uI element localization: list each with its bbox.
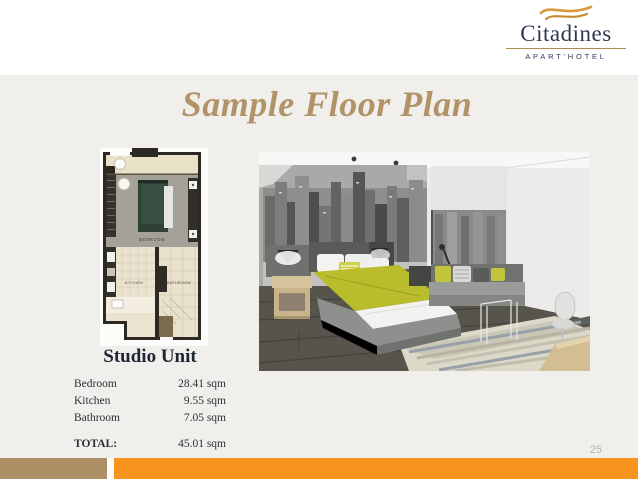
slide-title: Sample Floor Plan <box>0 83 638 125</box>
plan-rooms <box>106 155 198 340</box>
footer-orange-bar <box>114 458 638 479</box>
wave-icon <box>539 4 593 22</box>
kitchen-label: KITCHEN <box>125 281 144 285</box>
footer <box>0 458 638 479</box>
row-label: Kitchen <box>74 393 110 410</box>
bedroom-label: BEDROOM <box>139 237 165 242</box>
bedroom-photo <box>259 152 590 371</box>
row-label: Bathroom <box>74 410 120 427</box>
row-value: 7.05 sqm <box>184 410 226 427</box>
table-row: Kitchen 9.55 sqm <box>74 393 226 410</box>
citadines-logo: Citadines APART'HOTEL <box>504 4 628 61</box>
row-label: Bedroom <box>74 376 117 393</box>
page-number: 25 <box>590 444 602 456</box>
bedroom-render <box>259 152 590 371</box>
table-total-row: TOTAL: 45.01 sqm <box>74 436 226 453</box>
table-row: Bedroom 28.41 sqm <box>74 376 226 393</box>
unit-heading: Studio Unit <box>74 346 226 368</box>
table-row: Bathroom 7.05 sqm <box>74 410 226 427</box>
total-value: 45.01 sqm <box>178 436 226 453</box>
row-value: 28.41 sqm <box>178 376 226 393</box>
row-value: 9.55 sqm <box>184 393 226 410</box>
logo-wordmark: Citadines <box>504 22 628 46</box>
presentation-slide: Citadines APART'HOTEL Sample Floor Plan <box>0 0 638 479</box>
top-band: Citadines APART'HOTEL <box>0 0 638 75</box>
floor-plan-drawing: BEDROOM KITCHEN BATHROOM <box>100 148 208 346</box>
total-label: TOTAL: <box>74 436 117 453</box>
unit-info: Studio Unit Bedroom 28.41 sqm Kitchen 9.… <box>74 346 226 453</box>
logo-divider <box>506 48 626 49</box>
logo-subtitle: APART'HOTEL <box>504 52 628 61</box>
footer-tan-bar <box>0 458 107 479</box>
bathroom-label: BATHROOM <box>167 281 191 285</box>
content-band: Sample Floor Plan <box>0 75 638 458</box>
floor-plan-image: BEDROOM KITCHEN BATHROOM <box>100 148 208 346</box>
